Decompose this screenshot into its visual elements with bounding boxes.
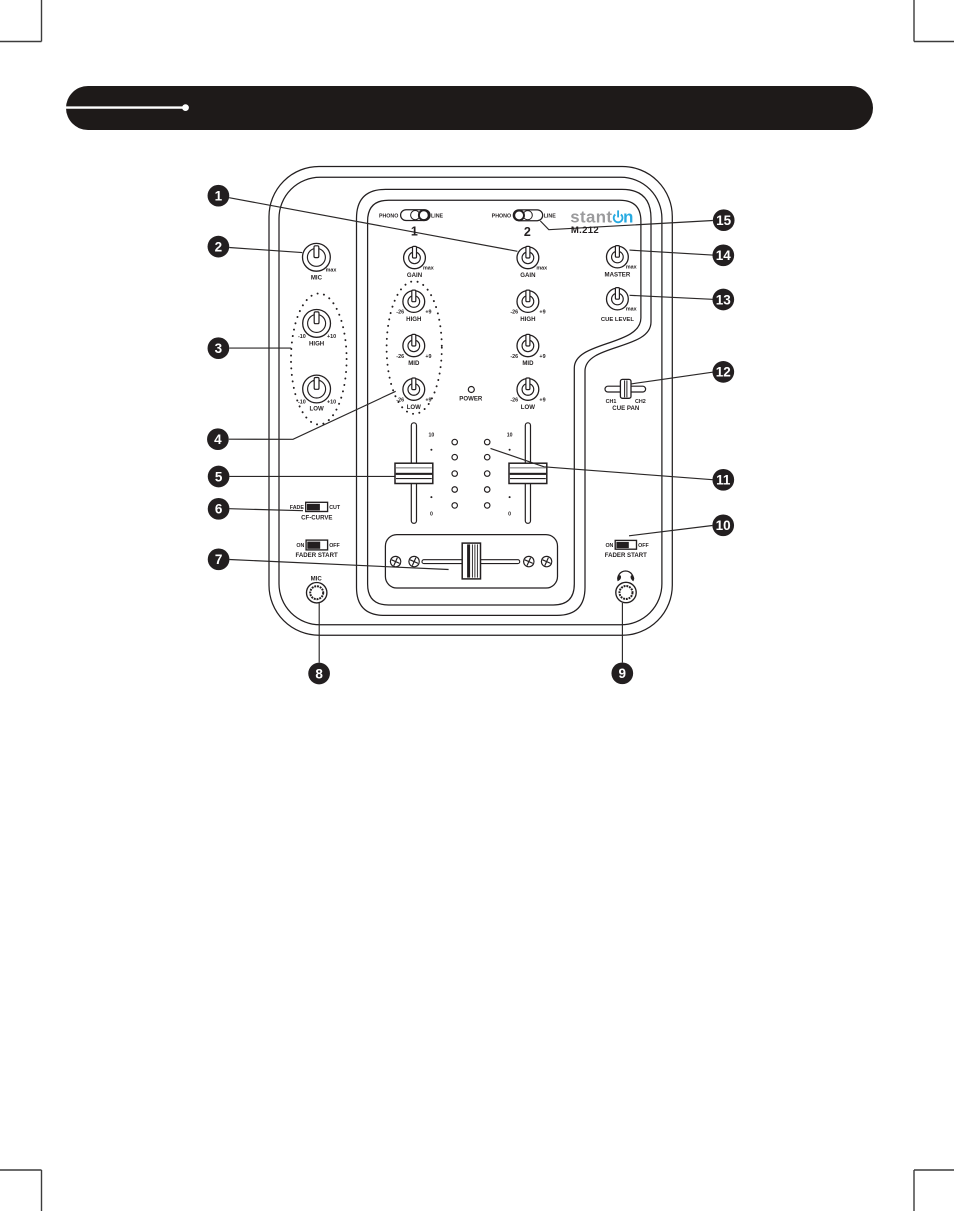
svg-text:OFF: OFF [638,543,649,549]
svg-text:+10: +10 [327,400,336,406]
svg-text:+9: +9 [425,398,431,404]
svg-text:MID: MID [522,360,534,367]
svg-text:10: 10 [507,433,513,439]
svg-text:LOW: LOW [521,404,535,411]
svg-text:+9: +9 [425,310,431,316]
svg-text:13: 13 [716,292,732,307]
svg-text:15: 15 [716,213,732,228]
svg-text:GAIN: GAIN [520,272,535,279]
svg-text:GAIN: GAIN [407,272,422,279]
svg-text:PHONO: PHONO [379,213,398,219]
svg-text:10: 10 [429,433,435,439]
svg-text:7: 7 [215,552,223,567]
svg-text:max: max [423,265,434,271]
svg-text:-26: -26 [396,398,404,404]
svg-text:max: max [326,268,337,274]
svg-text:FADE: FADE [290,505,305,511]
svg-text:CF-CURVE: CF-CURVE [301,514,332,521]
svg-text:-26: -26 [396,310,404,316]
svg-text:4: 4 [214,432,222,447]
svg-text:14: 14 [716,248,732,263]
svg-text:+9: +9 [539,310,545,316]
svg-text:2: 2 [215,239,223,254]
svg-text:0: 0 [430,512,433,518]
svg-text:POWER: POWER [459,396,483,403]
svg-text:max: max [536,265,547,271]
svg-text:-10: -10 [298,400,306,406]
svg-text:6: 6 [215,502,223,517]
svg-text:9: 9 [619,666,627,681]
svg-text:MASTER: MASTER [605,271,631,278]
svg-text:PHONO: PHONO [492,214,511,220]
svg-text:MIC: MIC [311,576,323,583]
svg-text:1: 1 [411,225,418,239]
svg-text:n: n [623,208,633,227]
svg-text:CUT: CUT [329,505,341,511]
svg-text:+10: +10 [327,334,336,340]
svg-text:max: max [626,265,637,271]
svg-text:-26: -26 [510,354,518,360]
svg-text:+9: +9 [539,354,545,360]
svg-text:5: 5 [215,469,223,484]
svg-text:CH1: CH1 [606,399,617,405]
svg-text:12: 12 [716,365,731,380]
svg-text:FADER START: FADER START [295,552,337,559]
svg-text:LOW: LOW [407,404,421,411]
svg-text:+9: +9 [425,354,431,360]
svg-text:2: 2 [524,225,531,239]
svg-text:-26: -26 [510,398,518,404]
svg-text:+9: +9 [539,398,545,404]
svg-text:ON: ON [296,543,304,549]
svg-text:MIC: MIC [311,274,323,281]
svg-text:M.212: M.212 [571,225,599,236]
svg-text:ON: ON [605,543,613,549]
svg-text:LINE: LINE [431,213,444,219]
svg-text:MID: MID [408,360,420,367]
svg-text:max: max [626,307,637,313]
svg-text:HIGH: HIGH [406,316,421,323]
svg-text:stant: stant [570,208,612,227]
svg-text:1: 1 [215,189,223,204]
svg-text:3: 3 [215,341,223,356]
svg-text:11: 11 [716,473,731,488]
svg-text:CUE LEVEL: CUE LEVEL [601,317,634,323]
svg-text:HIGH: HIGH [309,340,324,347]
svg-text:0: 0 [508,512,511,518]
svg-text:FADER START: FADER START [605,552,647,559]
svg-text:LOW: LOW [309,406,323,413]
svg-text:CUE PAN: CUE PAN [612,405,639,412]
svg-text:HIGH: HIGH [520,316,535,323]
svg-text:-10: -10 [298,334,306,340]
svg-text:-26: -26 [510,310,518,316]
svg-text:8: 8 [315,666,323,681]
svg-text:LINE: LINE [544,214,557,220]
svg-text:-26: -26 [396,354,404,360]
svg-text:OFF: OFF [329,543,340,549]
svg-text:10: 10 [716,518,731,533]
svg-text:CH2: CH2 [635,399,646,405]
